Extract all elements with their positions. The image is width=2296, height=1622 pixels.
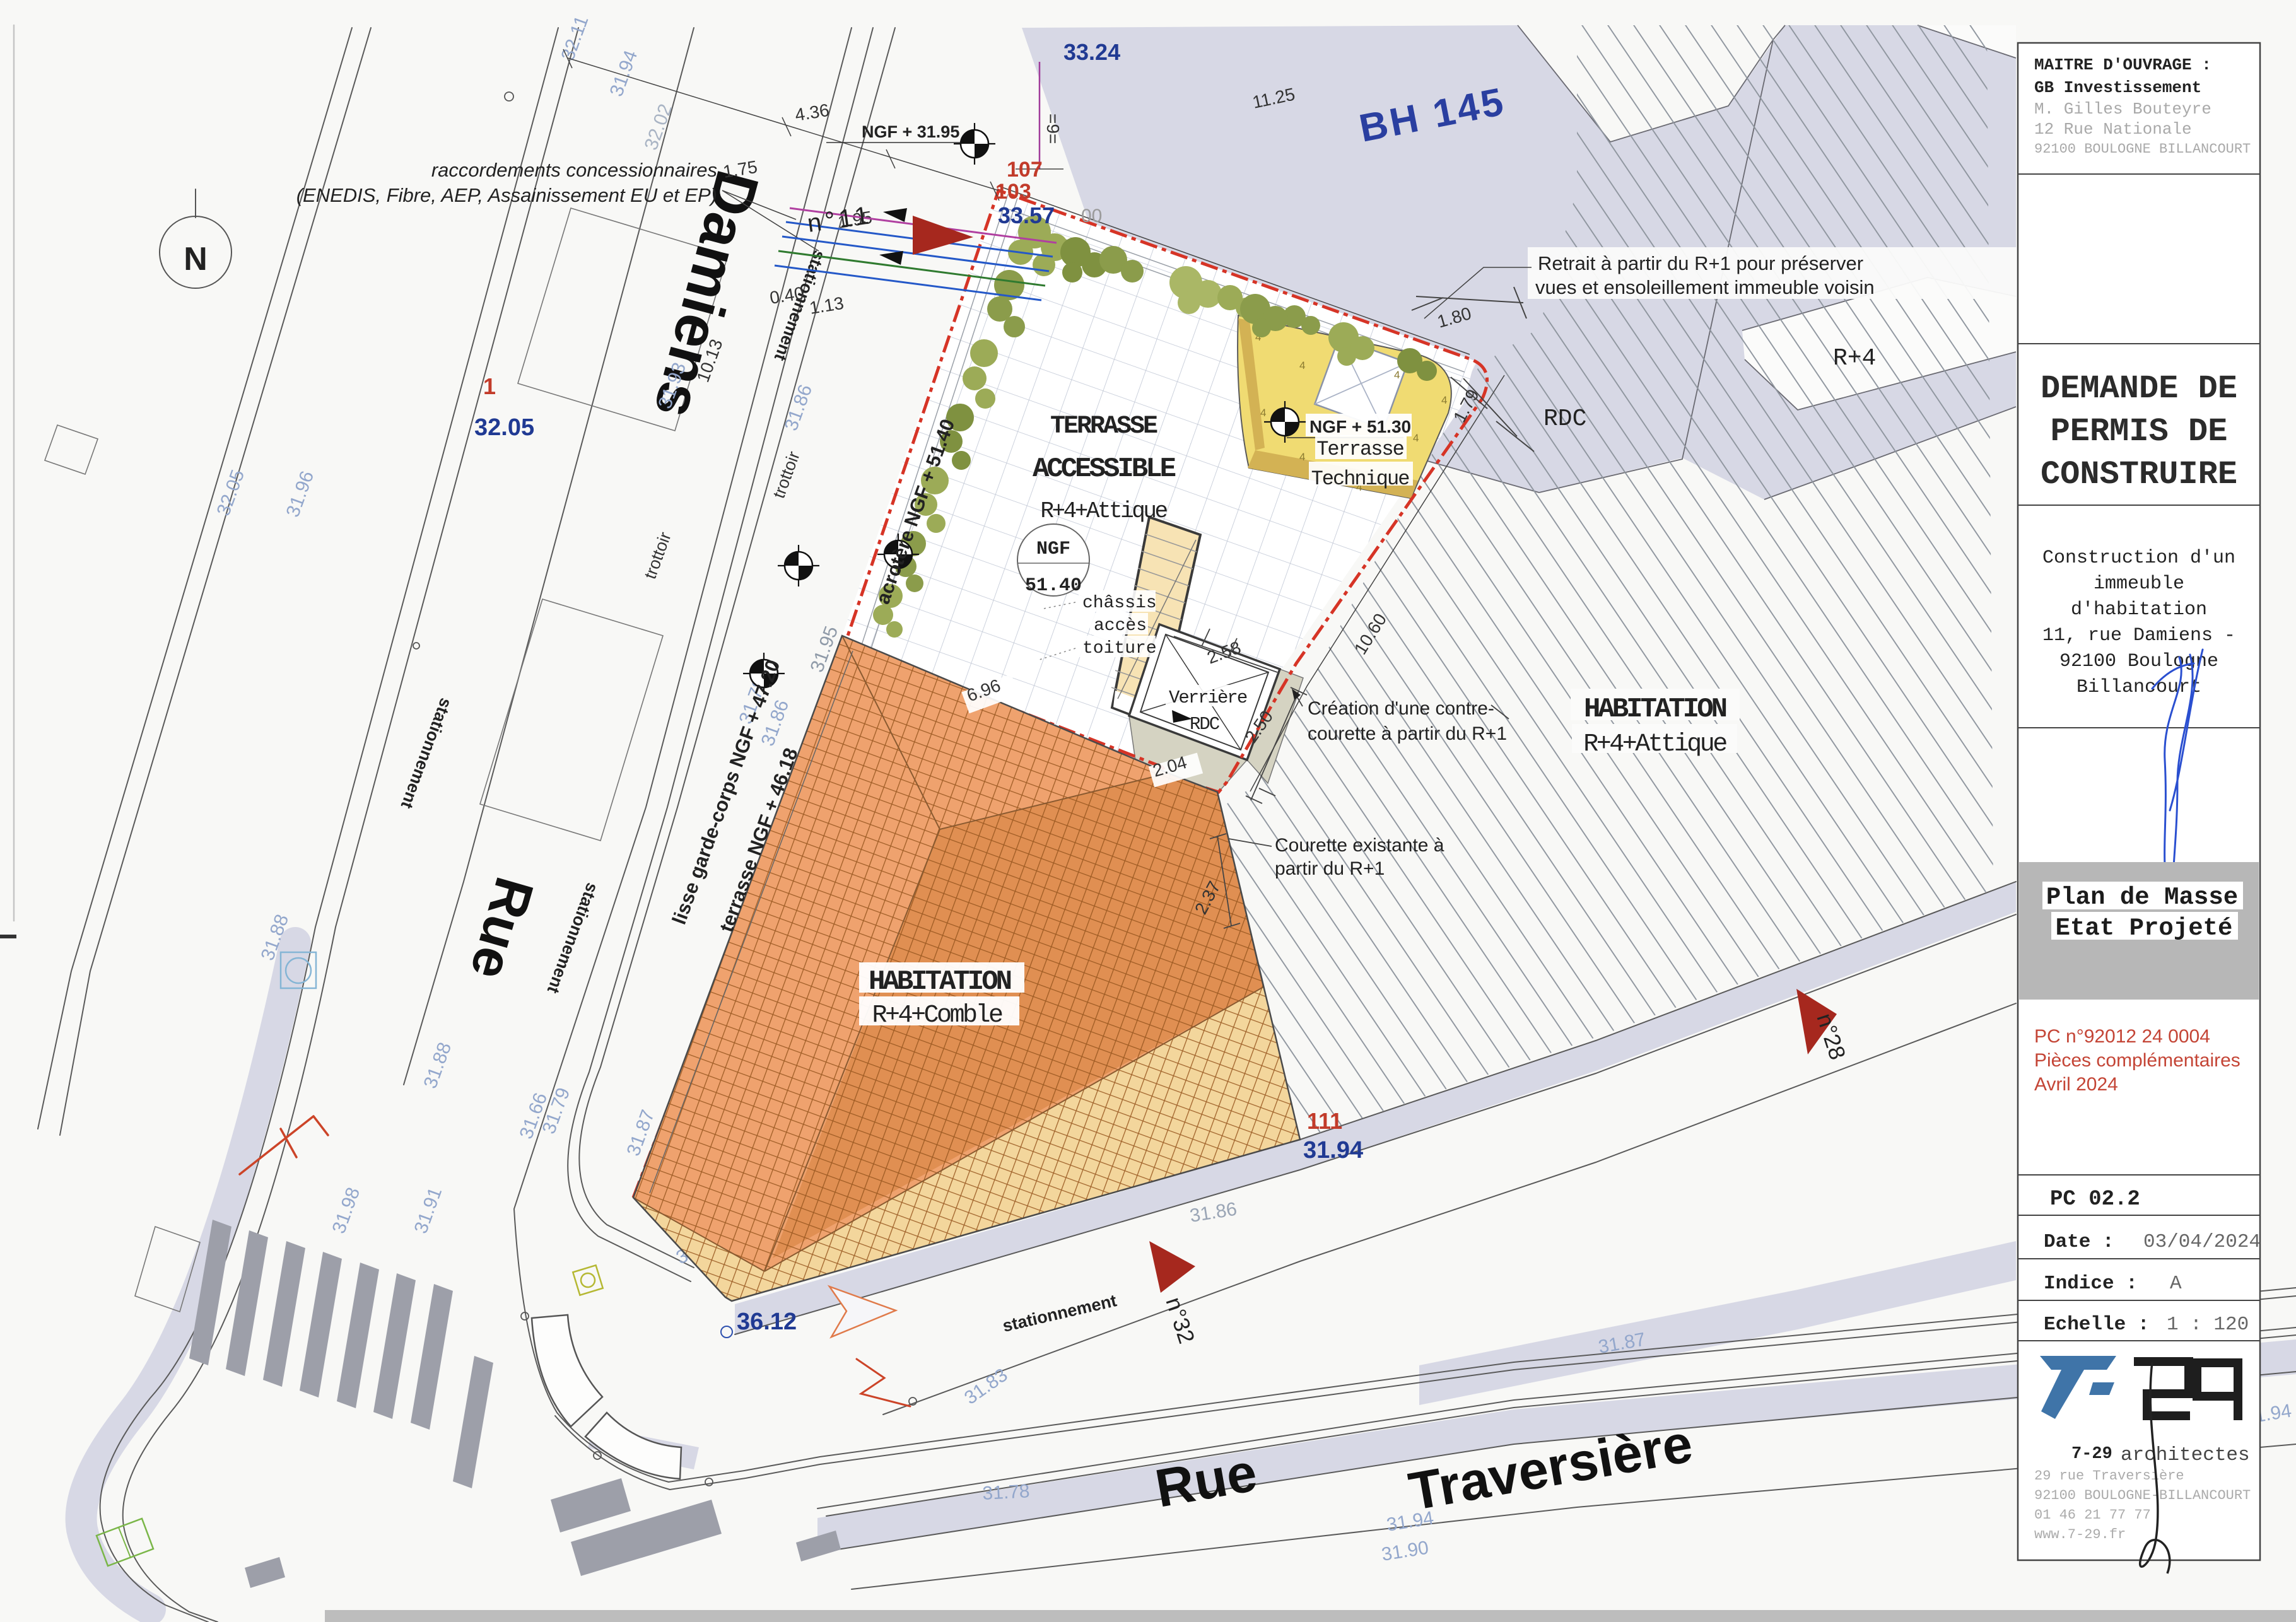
svg-text:03/04/2024: 03/04/2024	[2143, 1231, 2261, 1253]
svg-text:4: 4	[1413, 432, 1419, 444]
svg-text:29 rue Traversière: 29 rue Traversière	[2034, 1468, 2184, 1484]
svg-text:TERRASSE: TERRASSE	[1050, 412, 1157, 441]
svg-text:châssis: châssis	[1082, 593, 1157, 613]
svg-text:32.05: 32.05	[474, 414, 534, 441]
svg-text:Etat Projeté: Etat Projeté	[2056, 914, 2233, 942]
svg-text:R+4: R+4	[1833, 345, 1876, 372]
svg-text:raccordements concessionnaires: raccordements concessionnaires	[431, 159, 717, 181]
svg-text:92100 Boulogne: 92100 Boulogne	[2059, 651, 2218, 672]
svg-text:Création d'une contre-: Création d'une contre-	[1308, 698, 1494, 719]
svg-text:Indice :: Indice :	[2044, 1273, 2138, 1295]
svg-text:01 46 21 77 77: 01 46 21 77 77	[2034, 1507, 2151, 1523]
svg-text:Echelle :: Echelle :	[2044, 1314, 2149, 1336]
svg-text:RDC: RDC	[1190, 714, 1220, 735]
svg-text:107: 107	[1007, 158, 1043, 182]
svg-text:4: 4	[1299, 359, 1305, 371]
svg-text:4: 4	[1441, 394, 1447, 406]
svg-text:Terrasse: Terrasse	[1316, 438, 1403, 461]
svg-text:Billancourt: Billancourt	[2076, 677, 2201, 698]
svg-text:R+4+Comble: R+4+Comble	[872, 1001, 1002, 1030]
svg-text:31.94: 31.94	[1303, 1137, 1363, 1164]
svg-text:Retrait à partir du R+1 pour p: Retrait à partir du R+1 pour préserver	[1538, 252, 1863, 274]
svg-text:11, rue Damiens -: 11, rue Damiens -	[2042, 625, 2235, 646]
svg-text:toiture: toiture	[1082, 639, 1157, 658]
svg-text:Verrière: Verrière	[1169, 687, 1247, 708]
svg-text:Date :: Date :	[2044, 1231, 2114, 1253]
svg-text:1: 1	[483, 373, 496, 399]
svg-text:103: 103	[995, 180, 1031, 204]
svg-text:R+4+Attique: R+4+Attique	[1583, 730, 1726, 759]
svg-text:MAITRE D'OUVRAGE :: MAITRE D'OUVRAGE :	[2034, 55, 2211, 74]
svg-text:PC n°92012 24 0004: PC n°92012 24 0004	[2034, 1026, 2210, 1047]
svg-text:33.24: 33.24	[1063, 39, 1120, 65]
svg-text:www.7-29.fr: www.7-29.fr	[2034, 1527, 2126, 1543]
svg-text:immeuble: immeuble	[2094, 573, 2184, 595]
svg-text:NGF + 31.95: NGF + 31.95	[862, 122, 959, 141]
svg-text:N: N	[184, 241, 208, 277]
svg-text:4: 4	[1260, 407, 1266, 419]
svg-text:Construction d'un: Construction d'un	[2042, 547, 2235, 569]
svg-text:111: 111	[1307, 1108, 1342, 1134]
svg-text:1 : 120: 1 : 120	[2167, 1314, 2249, 1336]
svg-text:Plan de Masse: Plan de Masse	[2046, 884, 2238, 911]
svg-text:partir du R+1: partir du R+1	[1275, 858, 1385, 879]
svg-text:Pièces complémentaires: Pièces complémentaires	[2034, 1050, 2240, 1071]
svg-text:accès: accès	[1094, 616, 1147, 636]
svg-text:00: 00	[1081, 206, 1102, 226]
svg-text:31.78: 31.78	[982, 1481, 1031, 1504]
svg-text:4: 4	[1299, 451, 1305, 463]
svg-text:92100 BOULOGNE-BILLANCOURT: 92100 BOULOGNE-BILLANCOURT	[2034, 1488, 2251, 1503]
svg-text:PC 02.2: PC 02.2	[2050, 1187, 2140, 1211]
svg-text:PERMIS DE: PERMIS DE	[2051, 413, 2228, 450]
svg-text:DEMANDE DE: DEMANDE DE	[2041, 370, 2237, 407]
svg-text:36.12: 36.12	[737, 1309, 797, 1335]
svg-text:(ENEDIS, Fibre, AEP, Assainiss: (ENEDIS, Fibre, AEP, Assainissement EU e…	[296, 184, 717, 206]
svg-text:HABITATION: HABITATION	[1584, 694, 1726, 725]
svg-text:ACCESSIBLE: ACCESSIBLE	[1033, 453, 1176, 485]
svg-text:NGF: NGF	[1036, 539, 1070, 560]
svg-text:51.40: 51.40	[1025, 575, 1082, 597]
svg-text:M. Gilles Bouteyre: M. Gilles Bouteyre	[2034, 100, 2211, 119]
svg-text:R+4+Attique: R+4+Attique	[1040, 498, 1167, 524]
svg-text:4: 4	[1394, 369, 1400, 381]
svg-text:d'habitation: d'habitation	[2071, 599, 2207, 621]
svg-text:architectes: architectes	[2121, 1444, 2250, 1466]
svg-text:Courette existante à: Courette existante à	[1275, 835, 1444, 856]
svg-text:33.57: 33.57	[998, 202, 1055, 228]
svg-text:NGF + 51.30: NGF + 51.30	[1309, 417, 1411, 436]
svg-text:7-29: 7-29	[2071, 1445, 2112, 1464]
svg-text:RDC: RDC	[1543, 405, 1586, 433]
svg-text:12 Rue Nationale: 12 Rue Nationale	[2034, 120, 2192, 139]
svg-text:HABITATION: HABITATION	[869, 966, 1011, 998]
svg-text:A: A	[2170, 1273, 2182, 1295]
svg-text:GB Investissement: GB Investissement	[2034, 78, 2201, 97]
svg-text:courette à partir du R+1: courette à partir du R+1	[1308, 723, 1507, 744]
svg-text:vues et ensoleillement immeubl: vues et ensoleillement immeuble voisin	[1535, 276, 1875, 298]
svg-text:Avril 2024: Avril 2024	[2034, 1074, 2118, 1095]
svg-text:CONSTRUIRE: CONSTRUIRE	[2041, 456, 2237, 493]
svg-text:Technique: Technique	[1311, 467, 1410, 491]
svg-text:92100 BOULOGNE BILLANCOURT: 92100 BOULOGNE BILLANCOURT	[2034, 141, 2251, 157]
svg-text:=9=: =9=	[1043, 114, 1063, 144]
